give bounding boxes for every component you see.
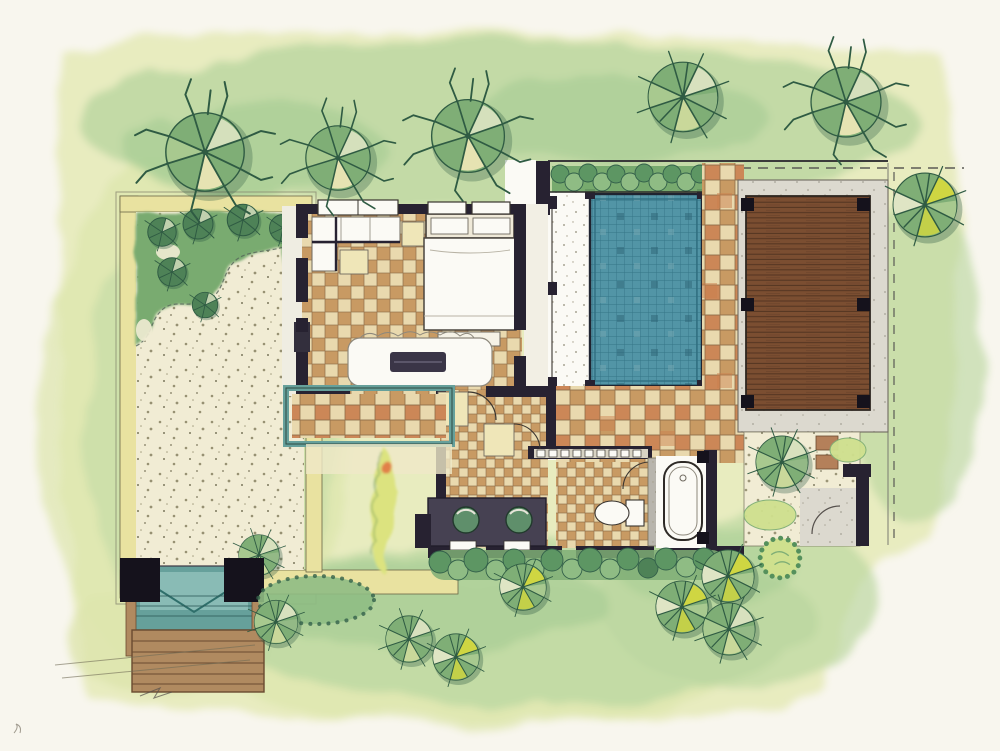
wardrobe-hangers	[534, 449, 648, 458]
court-shrub-bed	[744, 500, 796, 530]
flower-accent	[379, 460, 391, 472]
upper-terrace	[505, 160, 536, 206]
writing-desk	[348, 332, 492, 386]
post	[697, 532, 709, 544]
pillow	[431, 218, 468, 234]
court-shrub-bed	[830, 438, 866, 462]
timber-walkway	[286, 388, 452, 474]
pool-hedge	[550, 164, 726, 192]
cabinet	[484, 424, 514, 456]
toilet-bowl	[595, 501, 629, 525]
court-wall	[856, 464, 869, 546]
deck-planks	[746, 196, 870, 410]
courtyard-west-wall	[120, 196, 138, 598]
walkway-planks	[292, 394, 446, 438]
bed	[424, 214, 516, 346]
site-plan-canvas	[0, 0, 1000, 751]
pool-water-spots	[590, 194, 702, 386]
shrub	[760, 538, 800, 578]
bathtub-room	[648, 451, 709, 548]
pillow	[473, 218, 510, 234]
coffee-table	[340, 250, 368, 274]
side-garden-court	[744, 428, 871, 546]
gate-post	[120, 558, 160, 602]
floor-plan-illustration	[0, 0, 1000, 751]
nightstand	[402, 222, 424, 246]
gravel-gap	[136, 319, 152, 341]
gate-post	[224, 558, 264, 602]
sun-deck	[738, 180, 888, 432]
east-strip	[524, 204, 548, 390]
post	[697, 451, 709, 463]
bathtub	[664, 462, 702, 540]
double-vanity	[415, 498, 546, 550]
